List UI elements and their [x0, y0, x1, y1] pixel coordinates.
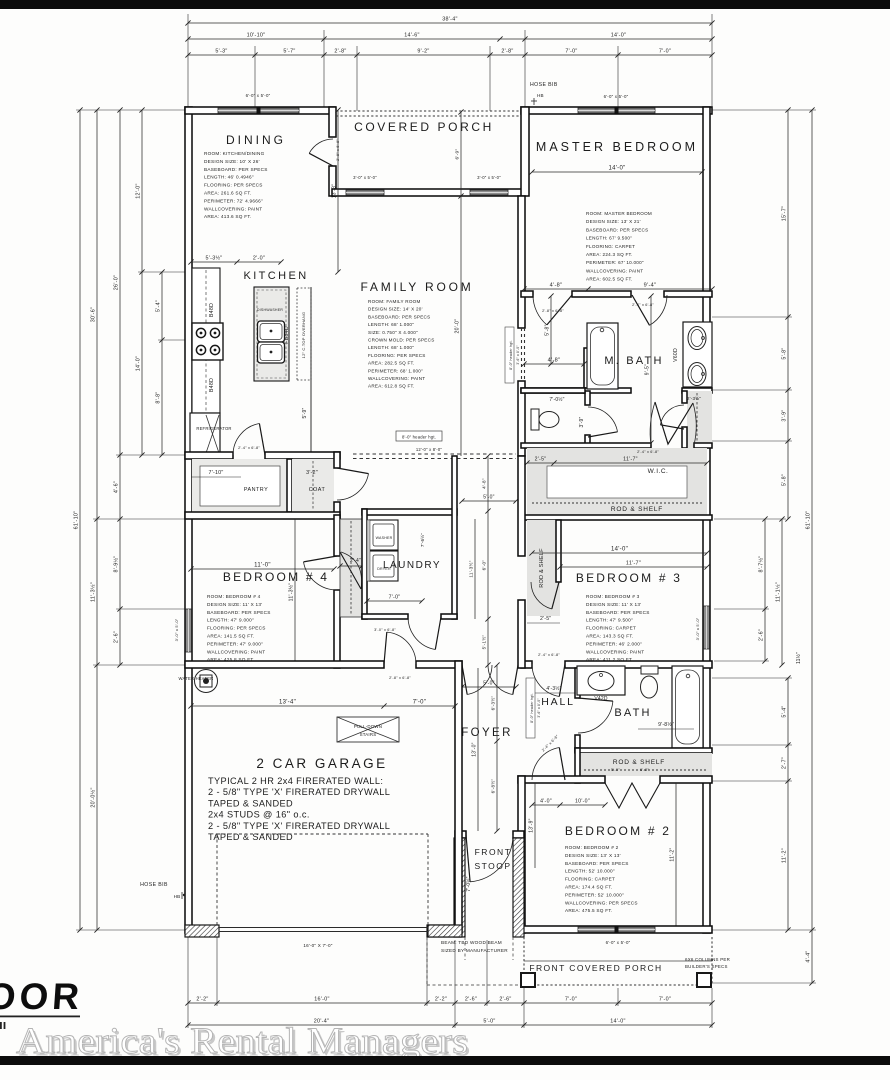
svg-text:11½": 11½" [795, 652, 802, 664]
svg-text:3'-0" x 5'-0": 3'-0" x 5'-0" [174, 618, 179, 641]
svg-text:WASHER: WASHER [376, 536, 393, 540]
svg-text:8'-0" header hgt.: 8'-0" header hgt. [402, 435, 436, 440]
svg-text:2'-2": 2'-2" [435, 996, 447, 1002]
svg-text:2'-6": 2'-6" [758, 629, 764, 641]
svg-text:3'-0" x 5'-0": 3'-0" x 5'-0" [353, 175, 377, 180]
svg-text:11'-3½": 11'-3½" [89, 582, 96, 602]
svg-text:5'-0": 5'-0" [611, 767, 620, 772]
svg-text:FLOORING: CARPET: FLOORING: CARPET [586, 244, 635, 249]
svg-text:3'-0" x 6'-8": 3'-0" x 6'-8" [374, 628, 396, 632]
svg-text:AREA: 475.5 SQ FT.: AREA: 475.5 SQ FT. [565, 908, 613, 913]
svg-text:11'-7": 11'-7" [626, 560, 641, 566]
svg-text:5'-7": 5'-7" [283, 48, 295, 54]
svg-text:HOSE BIB: HOSE BIB [140, 882, 168, 888]
svg-text:ROD & SHELF: ROD & SHELF [613, 759, 665, 766]
svg-text:61'-10": 61'-10" [805, 511, 811, 530]
svg-text:3'-6" x 8'-0": 3'-6" x 8'-0" [516, 345, 520, 365]
svg-text:16'-0" X 7'-0": 16'-0" X 7'-0" [303, 943, 332, 948]
svg-text:4'-8": 4'-8" [548, 357, 561, 363]
svg-text:AREA: 612.8 SQ FT.: AREA: 612.8 SQ FT. [368, 384, 415, 389]
svg-text:2'-4" x 6'-8": 2'-4" x 6'-8" [238, 446, 260, 450]
svg-text:LENGTH: 67' 9.500": LENGTH: 67' 9.500" [586, 236, 632, 241]
svg-text:7'-0": 7'-0" [659, 996, 671, 1002]
svg-text:11'-3½": 11'-3½" [287, 583, 294, 602]
svg-text:8'-0" header hgt.: 8'-0" header hgt. [530, 693, 534, 723]
svg-text:CROWN MOLD: PER SPECS: CROWN MOLD: PER SPECS [368, 338, 435, 343]
svg-text:OOR: OOR [0, 975, 85, 1017]
svg-text:6'-9": 6'-9" [454, 148, 460, 159]
svg-text:BEDROOM # 3: BEDROOM # 3 [576, 571, 682, 585]
svg-text:LENGTH: 47' 9.000": LENGTH: 47' 9.000" [207, 618, 254, 623]
svg-text:4'-0": 4'-0" [540, 798, 552, 804]
svg-text:AREA: 224.3 SQ FT.: AREA: 224.3 SQ FT. [586, 252, 633, 257]
svg-text:LENGTH: 68' 1.000": LENGTH: 68' 1.000" [368, 322, 414, 327]
svg-text:4'-8": 4'-8" [481, 478, 486, 489]
svg-text:7'-10": 7'-10" [209, 470, 224, 476]
svg-text:2'-2": 2'-2" [196, 996, 208, 1002]
svg-text:BEDROOM # 2: BEDROOM # 2 [565, 824, 671, 838]
svg-text:DESIGN SIZE: 10' X 26': DESIGN SIZE: 10' X 26' [204, 159, 260, 164]
svg-text:M. BATH: M. BATH [604, 355, 663, 367]
svg-text:3'-2": 3'-2" [306, 470, 318, 476]
svg-text:16'-0": 16'-0" [314, 996, 330, 1002]
svg-text:11'-7": 11'-7" [623, 456, 638, 462]
svg-text:SIZED BY MANUFACTURER: SIZED BY MANUFACTURER [441, 948, 508, 953]
svg-text:LAUNDRY: LAUNDRY [383, 560, 441, 571]
svg-text:AREA: 282.5 SQ FT.: AREA: 282.5 SQ FT. [368, 361, 415, 366]
svg-text:13'-3": 13'-3" [331, 184, 337, 199]
svg-text:6'-8½": 6'-8½" [489, 779, 495, 794]
svg-text:2'-8": 2'-8" [501, 48, 513, 54]
svg-text:2'-0": 2'-0" [253, 255, 265, 261]
svg-text:HOSE BIB: HOSE BIB [530, 82, 558, 88]
svg-text:7'-0": 7'-0" [413, 699, 426, 705]
svg-text:2'-5": 2'-5" [540, 616, 551, 622]
svg-text:6'-3½": 6'-3½" [489, 696, 495, 711]
svg-text:5'-8": 5'-8" [544, 324, 550, 335]
svg-text:7'-0": 7'-0" [565, 996, 577, 1002]
svg-text:3'-9": 3'-9" [579, 417, 585, 428]
svg-text:FRONT COVERED PORCH: FRONT COVERED PORCH [529, 963, 662, 973]
svg-text:FB84D: FB84D [284, 326, 290, 344]
svg-text:STAIRS: STAIRS [360, 732, 377, 737]
svg-text:11'-2": 11'-2" [781, 848, 787, 863]
svg-text:61'-10": 61'-10" [73, 511, 79, 530]
svg-text:2'-4" x 6'-8": 2'-4" x 6'-8" [637, 450, 659, 454]
svg-text:FOYER: FOYER [461, 727, 513, 739]
svg-text:3'-0" x 5'-0": 3'-0" x 5'-0" [477, 175, 501, 180]
svg-text:9'-2": 9'-2" [417, 48, 429, 54]
svg-text:STOOP: STOOP [474, 861, 511, 871]
svg-text:2'-8" x 6'-8": 2'-8" x 6'-8" [389, 676, 411, 680]
svg-text:AREA: 413.6 SQ FT.: AREA: 413.6 SQ FT. [204, 214, 252, 219]
svg-text:30'-6": 30'-6" [90, 307, 96, 323]
svg-text:5'-3": 5'-3" [215, 48, 227, 54]
svg-text:5'-4": 5'-4" [781, 705, 787, 717]
svg-text:LENGTH: 52' 10.000": LENGTH: 52' 10.000" [565, 869, 615, 874]
svg-text:ROOM: BEDROOM # 3: ROOM: BEDROOM # 3 [586, 594, 640, 599]
svg-text:PERIMETER: 67' 10.000": PERIMETER: 67' 10.000" [586, 260, 644, 265]
svg-text:4'-6": 4'-6" [113, 481, 119, 493]
svg-text:PANTRY: PANTRY [244, 487, 268, 493]
svg-text:FAMILY ROOM: FAMILY ROOM [360, 280, 473, 294]
svg-text:BASEBOARD: PER SPECS: BASEBOARD: PER SPECS [368, 314, 430, 319]
svg-text:11'-0": 11'-0" [254, 562, 271, 568]
svg-text:5'-4": 5'-4" [155, 300, 161, 312]
svg-text:AREA: 174.4 SQ FT.: AREA: 174.4 SQ FT. [565, 885, 613, 890]
svg-text:AREA: 141.5 SQ FT.: AREA: 141.5 SQ FT. [207, 634, 255, 639]
svg-text:B48D: B48D [209, 303, 215, 317]
svg-text:LENGTH: 46' 0.4946": LENGTH: 46' 0.4946" [204, 175, 254, 180]
svg-text:2'-4" x 6'-8": 2'-4" x 6'-8" [538, 653, 560, 657]
svg-text:DESIGN SIZE: 13' X 13': DESIGN SIZE: 13' X 13' [565, 853, 621, 858]
svg-text:ROOM: BEDROOM # 2: ROOM: BEDROOM # 2 [565, 845, 619, 850]
svg-text:B48D: B48D [209, 378, 215, 392]
svg-text:20'-0½": 20'-0½" [89, 787, 96, 807]
svg-text:TYPICAL 2 HR 2x4 FIRERATED WAL: TYPICAL 2 HR 2x4 FIRERATED WALL: [208, 776, 383, 786]
svg-text:PULL-DOWN: PULL-DOWN [354, 724, 382, 729]
svg-text:13'-9": 13'-9" [528, 818, 534, 833]
svg-text:DESIGN SIZE: 14' X 20': DESIGN SIZE: 14' X 20' [368, 307, 423, 312]
svg-text:WALLCOVERING: PAINT: WALLCOVERING: PAINT [207, 649, 265, 654]
svg-text:ROD & SHELF: ROD & SHELF [539, 548, 545, 588]
svg-text:LENGTH: 68' 1.000": LENGTH: 68' 1.000" [368, 345, 414, 350]
svg-text:2 - 5/8" TYPE 'X' FIRERATED DR: 2 - 5/8" TYPE 'X' FIRERATED DRYWALL [208, 821, 390, 831]
svg-text:5'-0": 5'-0" [483, 1018, 495, 1024]
svg-text:LENGTH: 47' 9.500": LENGTH: 47' 9.500" [586, 618, 633, 623]
svg-text:14'-6": 14'-6" [404, 32, 420, 38]
svg-text:4'-8": 4'-8" [550, 282, 563, 288]
svg-text:8'-0" header hgt.: 8'-0" header hgt. [509, 340, 513, 370]
svg-text:5'-8": 5'-8" [781, 347, 787, 359]
svg-text:10'-10": 10'-10" [247, 32, 266, 38]
svg-text:11'-1½": 11'-1½" [774, 582, 781, 602]
svg-text:WALLCOVERING: PAINT: WALLCOVERING: PAINT [586, 268, 643, 273]
svg-text:2x4 STUDS @ 16" o.c.: 2x4 STUDS @ 16" o.c. [208, 810, 310, 820]
svg-text:ROOM: MASTER BEDROOM: ROOM: MASTER BEDROOM [586, 211, 652, 216]
svg-text:2'-8" x 6'-8": 2'-8" x 6'-8" [542, 309, 564, 313]
svg-text:3'-0" x 5'-0": 3'-0" x 5'-0" [695, 617, 700, 640]
svg-text:BASEBOARD: PER SPECS: BASEBOARD: PER SPECS [207, 610, 271, 615]
svg-text:7'-6½": 7'-6½" [419, 533, 425, 547]
svg-text:8'-8": 8'-8" [155, 391, 161, 403]
svg-text:8'-9½": 8'-9½" [112, 555, 119, 572]
svg-text:BASEBOARD: PER SPECS: BASEBOARD: PER SPECS [565, 861, 629, 866]
svg-text:7'-0": 7'-0" [389, 594, 401, 600]
svg-text:14'-0": 14'-0" [611, 32, 627, 38]
svg-text:WALLCOVERING: PAINT: WALLCOVERING: PAINT [586, 649, 644, 654]
svg-text:BASEBOARD: PER SPECS: BASEBOARD: PER SPECS [204, 167, 268, 172]
svg-text:20'-0": 20'-0" [454, 318, 460, 333]
svg-text:PERIMETER: 52' 10.000": PERIMETER: 52' 10.000" [565, 892, 624, 897]
svg-text:DISHWASHER: DISHWASHER [257, 308, 283, 312]
svg-text:TAPED & SANDED: TAPED & SANDED [208, 798, 293, 808]
svg-text:7'-0½": 7'-0½" [465, 876, 472, 891]
svg-text:15'-7": 15'-7" [781, 206, 787, 222]
svg-text:5'-0": 5'-0" [483, 494, 494, 500]
svg-text:BASEBOARD: PER SPECS: BASEBOARD: PER SPECS [586, 227, 648, 232]
svg-text:DESIGN SIZE: 13' X 21': DESIGN SIZE: 13' X 21' [586, 219, 641, 224]
svg-text:FLOORING: PER SPECS: FLOORING: PER SPECS [207, 626, 266, 631]
svg-text:8'-7½": 8'-7½" [757, 555, 764, 572]
svg-text:2'-3½": 2'-3½" [687, 395, 701, 401]
svg-text:14'-0": 14'-0" [135, 356, 141, 372]
svg-text:America's Rental Managers: America's Rental Managers [16, 1021, 468, 1062]
svg-text:6'-8": 6'-8" [640, 767, 649, 772]
svg-text:SIZE: 0.750" X 4.000": SIZE: 0.750" X 4.000" [368, 330, 418, 335]
svg-text:14'-0": 14'-0" [610, 1018, 626, 1024]
svg-text:AREA: 602.5 SQ FT.: AREA: 602.5 SQ FT. [586, 277, 633, 282]
svg-text:2'-6": 2'-6" [499, 996, 511, 1002]
svg-text:ROOM: KITCHEN/DINING: ROOM: KITCHEN/DINING [204, 151, 265, 156]
svg-text:PERIMETER: 68' 1.000": PERIMETER: 68' 1.000" [368, 368, 423, 373]
svg-text:PERIMETER: 46' 2.000": PERIMETER: 46' 2.000" [586, 641, 642, 646]
svg-text:HB: HB [174, 894, 181, 899]
svg-text:11'-2": 11'-2" [669, 847, 675, 861]
svg-text:9'-8½": 9'-8½" [658, 721, 674, 728]
svg-text:6'-0" x 5'-0": 6'-0" x 5'-0" [606, 940, 631, 945]
svg-text:2'-6": 2'-6" [465, 996, 477, 1002]
svg-text:12" C.TOP OVERHANG: 12" C.TOP OVERHANG [301, 312, 306, 359]
svg-text:WATER HEATER: WATER HEATER [179, 676, 214, 681]
svg-text:BATH: BATH [614, 707, 651, 719]
svg-text:V60D: V60D [673, 348, 679, 362]
svg-text:4'-4": 4'-4" [805, 950, 811, 962]
svg-text:14'-0": 14'-0" [611, 546, 628, 552]
svg-text:WALLCOVERING: PER SPECS: WALLCOVERING: PER SPECS [565, 900, 638, 905]
svg-text:2'-7": 2'-7" [781, 757, 787, 769]
svg-text:PERIMETER: 47' 9.000": PERIMETER: 47' 9.000" [207, 641, 263, 646]
svg-text:5'-8": 5'-8" [781, 474, 787, 486]
svg-text:ROOM: BEDROOM # 4: ROOM: BEDROOM # 4 [207, 594, 261, 599]
svg-text:5'-9": 5'-9" [302, 408, 308, 419]
svg-text:AREA: 143.3 SQ FT.: AREA: 143.3 SQ FT. [586, 634, 634, 639]
svg-text:38'-4": 38'-4" [442, 16, 458, 22]
svg-text:BUILDER'S SPECS: BUILDER'S SPECS [685, 964, 728, 969]
svg-text:FLOORING: CARPET: FLOORING: CARPET [586, 626, 636, 631]
svg-text:HB: HB [537, 93, 544, 98]
svg-text:12'-0" x 8'-0": 12'-0" x 8'-0" [416, 447, 443, 452]
svg-text:COVERED PORCH: COVERED PORCH [354, 120, 494, 134]
svg-text:ROOM: FAMILY ROOM: ROOM: FAMILY ROOM [368, 299, 421, 304]
svg-text:9'-4": 9'-4" [644, 282, 657, 288]
svg-text:BEDROOM # 4: BEDROOM # 4 [223, 570, 329, 584]
svg-text:WALLCOVERING: PAINT: WALLCOVERING: PAINT [368, 376, 425, 381]
svg-text:9'-5": 9'-5" [644, 364, 650, 375]
svg-text:DESIGN SIZE: 11' X 13': DESIGN SIZE: 11' X 13' [207, 602, 262, 607]
svg-text:7'-0": 7'-0" [659, 48, 671, 54]
svg-text:FRONT: FRONT [475, 847, 512, 857]
svg-text:TAPED & SANDED: TAPED & SANDED [208, 832, 293, 842]
svg-text:2'-8": 2'-8" [334, 48, 346, 54]
svg-text:PERIMETER: 72' 4.9666": PERIMETER: 72' 4.9666" [204, 198, 263, 203]
svg-text:BASEBOARD: PER SPECS: BASEBOARD: PER SPECS [586, 610, 650, 615]
svg-text:11'-3½": 11'-3½" [467, 560, 473, 577]
svg-text:6'-0" x 5'-0": 6'-0" x 5'-0" [604, 94, 629, 99]
svg-text:10'-0": 10'-0" [575, 798, 590, 804]
svg-text:6'-0" x 5'-0": 6'-0" x 5'-0" [246, 93, 271, 98]
svg-text:6'-0": 6'-0" [481, 560, 486, 571]
svg-text:14'-0": 14'-0" [608, 165, 625, 171]
svg-text:DINING: DINING [226, 133, 286, 147]
svg-text:FLOORING: CARPET: FLOORING: CARPET [565, 877, 615, 882]
svg-text:KITCHEN: KITCHEN [243, 270, 308, 282]
svg-text:AREA: 261.6 SQ FT.: AREA: 261.6 SQ FT. [204, 191, 252, 196]
svg-text:W.I.C.: W.I.C. [648, 468, 669, 475]
svg-text:MASTER BEDROOM: MASTER BEDROOM [536, 140, 698, 154]
svg-text:2 CAR GARAGE: 2 CAR GARAGE [256, 756, 387, 771]
svg-text:13'-0": 13'-0" [471, 742, 477, 757]
svg-text:WALLCOVERING: PAINT: WALLCOVERING: PAINT [204, 206, 262, 211]
svg-text:5'-3½": 5'-3½" [205, 254, 222, 261]
svg-text:12'-0": 12'-0" [135, 183, 141, 199]
svg-text:7'-0": 7'-0" [565, 48, 577, 54]
svg-text:DESIGN SIZE: 11' X 13': DESIGN SIZE: 11' X 13' [586, 602, 641, 607]
svg-text:V42D: V42D [594, 696, 607, 702]
svg-text:13'-4": 13'-4" [279, 699, 296, 705]
svg-text:BEAM: TBD WOOD BEAM: BEAM: TBD WOOD BEAM [441, 940, 502, 945]
svg-text:ROD & SHELF: ROD & SHELF [611, 506, 663, 513]
svg-text:HALL: HALL [541, 696, 574, 708]
svg-text:6X6 COLUMNS PER: 6X6 COLUMNS PER [685, 957, 730, 962]
svg-text:2 - 5/8" TYPE 'X' FIRERATED DR: 2 - 5/8" TYPE 'X' FIRERATED DRYWALL [208, 787, 390, 797]
svg-text:REFRIGERATOR: REFRIGERATOR [196, 426, 231, 431]
svg-text:3'-9": 3'-9" [781, 409, 787, 421]
svg-text:COAT: COAT [309, 487, 326, 493]
svg-text:3'-6" x 8'-0": 3'-6" x 8'-0" [537, 698, 541, 718]
svg-text:FLOORING: PER SPECS: FLOORING: PER SPECS [368, 353, 426, 358]
svg-text:26'-0": 26'-0" [113, 275, 119, 291]
svg-text:FLOORING: PER SPECS: FLOORING: PER SPECS [204, 183, 263, 188]
svg-text:2'-6": 2'-6" [113, 631, 119, 643]
svg-text:4'-3½": 4'-3½" [546, 685, 561, 692]
svg-text:7'-0½": 7'-0½" [549, 396, 564, 403]
svg-text:5'-1½": 5'-1½" [480, 635, 486, 650]
svg-text:2'-5": 2'-5" [535, 456, 547, 462]
